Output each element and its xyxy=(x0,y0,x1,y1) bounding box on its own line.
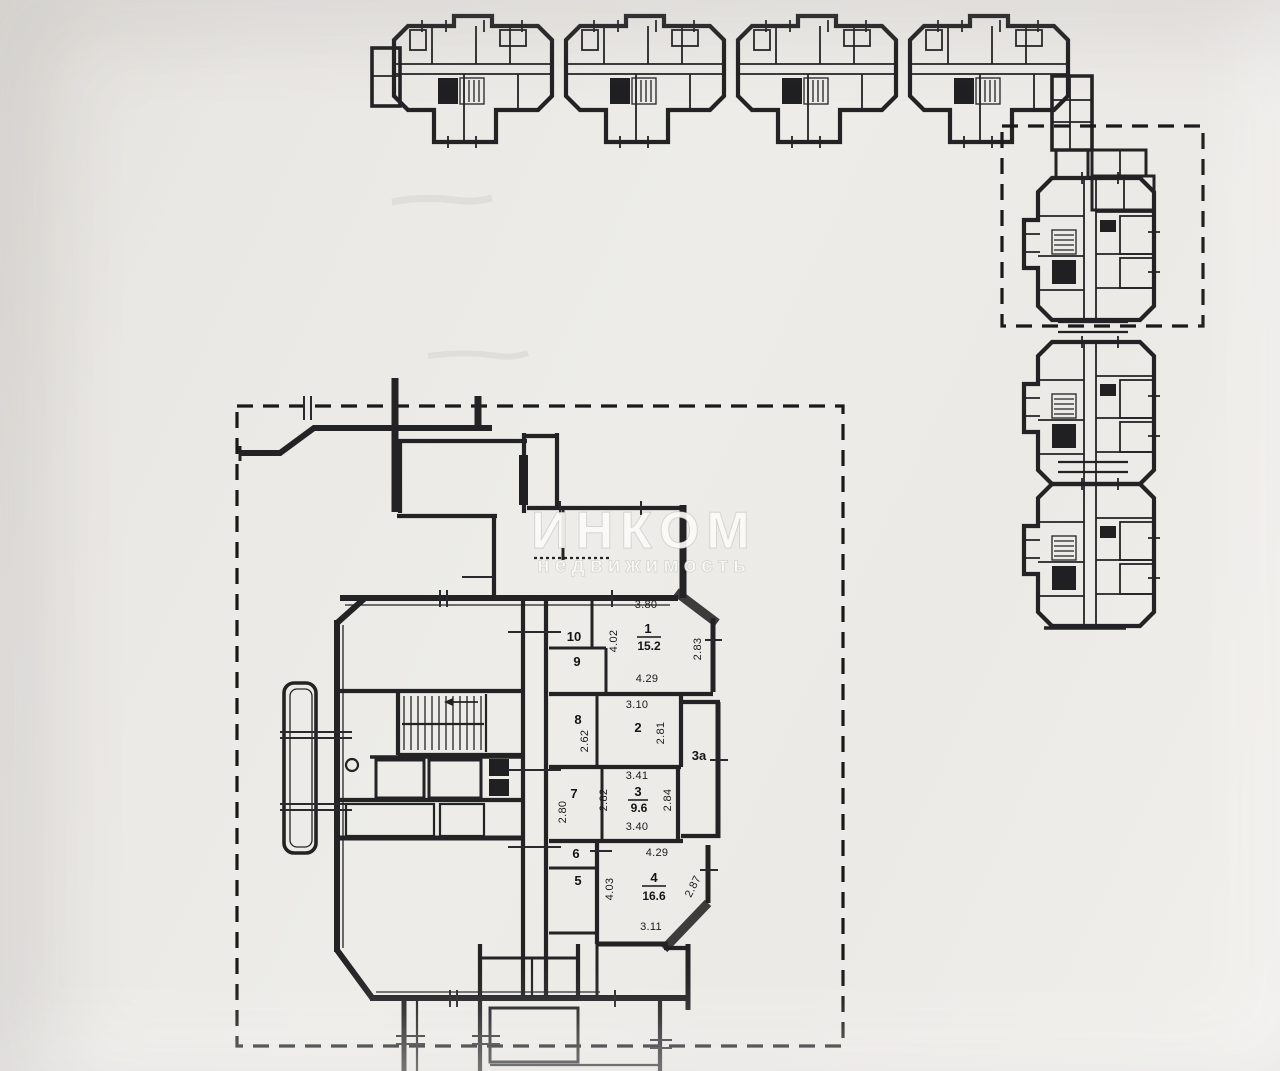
room-4-number: 4 xyxy=(650,870,658,885)
room-4-dim-right: 2.87 xyxy=(683,874,704,900)
left-balcony-bay xyxy=(280,683,352,853)
room-8-dim-left: 2.62 xyxy=(579,730,591,753)
room-3-dim-bottom: 3.40 xyxy=(626,821,649,833)
scanned-floor-plan-page: 3.80 4.02 1 15.2 2.83 4.29 10 9 8 2.62 3… xyxy=(0,0,1280,1071)
room-4-dim-bottom: 3.11 xyxy=(640,921,662,933)
room-9-number: 9 xyxy=(573,654,580,669)
room-8-number: 8 xyxy=(574,712,581,727)
room-3-area: 9.6 xyxy=(631,801,648,815)
room-7-number: 7 xyxy=(570,786,577,801)
room-1-dim-top: 3.80 xyxy=(635,599,658,611)
paper-smudges xyxy=(392,198,528,357)
room-7-dim-left: 2.80 xyxy=(557,801,569,824)
loggia-3a-bay xyxy=(681,702,728,838)
room-3-label: 3.41 2.82 3 9.6 2.84 3.40 xyxy=(598,770,674,833)
room-3-dim-left: 2.82 xyxy=(598,789,610,812)
room-3-number: 3 xyxy=(634,784,641,799)
room-2-dim-top: 3.10 xyxy=(626,699,649,711)
room-1-dim-bottom: 4.29 xyxy=(636,673,659,685)
room-4-dim-top: 4.29 xyxy=(646,847,669,859)
site-plan-right-strip xyxy=(1022,172,1160,628)
room-4-dim-left: 4.03 xyxy=(604,878,616,901)
room-2-dim-right: 2.81 xyxy=(655,722,667,745)
elevator-block xyxy=(337,757,523,838)
room-1-dim-left: 4.02 xyxy=(608,630,620,653)
room-1-dim-right: 2.83 xyxy=(692,638,704,661)
main-floor-plan: 3.80 4.02 1 15.2 2.83 4.29 10 9 8 2.62 3… xyxy=(240,378,728,1071)
stairwell xyxy=(337,691,523,755)
room-4-area: 16.6 xyxy=(642,889,666,903)
floor-plan-drawing: 3.80 4.02 1 15.2 2.83 4.29 10 9 8 2.62 3… xyxy=(0,0,1280,1071)
room-3a-number: 3а xyxy=(692,748,707,763)
site-plan-top-strip xyxy=(372,16,1146,176)
room-1-number: 1 xyxy=(644,621,651,636)
room-3-dim-right: 2.84 xyxy=(662,789,674,812)
room-2-number: 2 xyxy=(634,720,641,735)
watermark-subtitle: недвижимость xyxy=(537,554,751,577)
room-1-area: 15.2 xyxy=(637,639,661,653)
lower-service-rooms xyxy=(396,944,690,1071)
watermark: ИНКОМ недвижимость xyxy=(531,502,756,577)
room-2-label: 3.10 2 2.81 xyxy=(626,699,667,744)
watermark-title: ИНКОМ xyxy=(531,502,756,560)
room-5-number: 5 xyxy=(574,873,581,888)
room-3-dim-top: 3.41 xyxy=(626,770,649,782)
garbage-chute xyxy=(346,759,358,771)
room-1-label: 3.80 4.02 1 15.2 2.83 4.29 xyxy=(608,599,704,685)
room-10-number: 10 xyxy=(567,629,581,644)
room-6-number: 6 xyxy=(572,846,579,861)
